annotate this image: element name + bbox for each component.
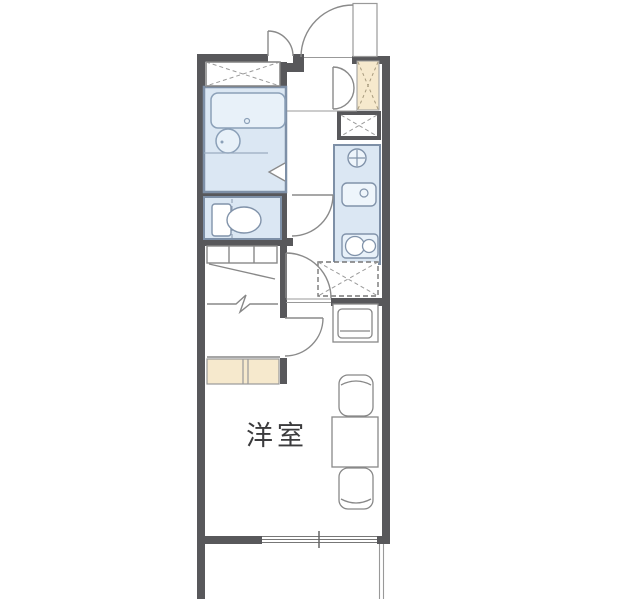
closet-diagonal <box>209 264 275 279</box>
shoe-cabinet-doors <box>333 67 354 109</box>
furniture <box>332 304 378 509</box>
floorplan-drawing <box>0 0 640 599</box>
wall-interior-stub <box>280 358 287 384</box>
toilet-door <box>292 195 333 236</box>
floorplan-canvas: 洋室 <box>0 0 640 599</box>
wash-basin <box>216 129 240 153</box>
wall-recess-right <box>293 54 304 72</box>
closet <box>207 246 280 357</box>
tv <box>338 309 372 338</box>
dining-table <box>332 417 378 467</box>
balcony-rail <box>380 544 384 599</box>
wall-bottom-left <box>197 536 262 544</box>
hanger-pipe <box>207 295 278 312</box>
closet-shelf <box>207 246 277 263</box>
washing-machine-space <box>339 113 379 138</box>
entrance-door-swing <box>301 5 353 57</box>
toilet-bowl <box>227 207 261 233</box>
basin-drain <box>221 141 224 144</box>
sliding-window <box>262 531 377 548</box>
stove-burner-large <box>346 237 365 256</box>
room-threshold <box>286 299 331 303</box>
wall-top-left <box>197 54 265 62</box>
kitchen-sink <box>342 183 376 206</box>
room-label: 洋室 <box>246 414 308 453</box>
entrance-door-leaf <box>353 4 377 57</box>
wall-bottom-right <box>377 536 390 544</box>
stove-burner-small <box>363 240 376 253</box>
balcony-rail-lines <box>380 544 384 599</box>
porch-storage-door <box>268 31 293 56</box>
room-door <box>285 318 323 356</box>
